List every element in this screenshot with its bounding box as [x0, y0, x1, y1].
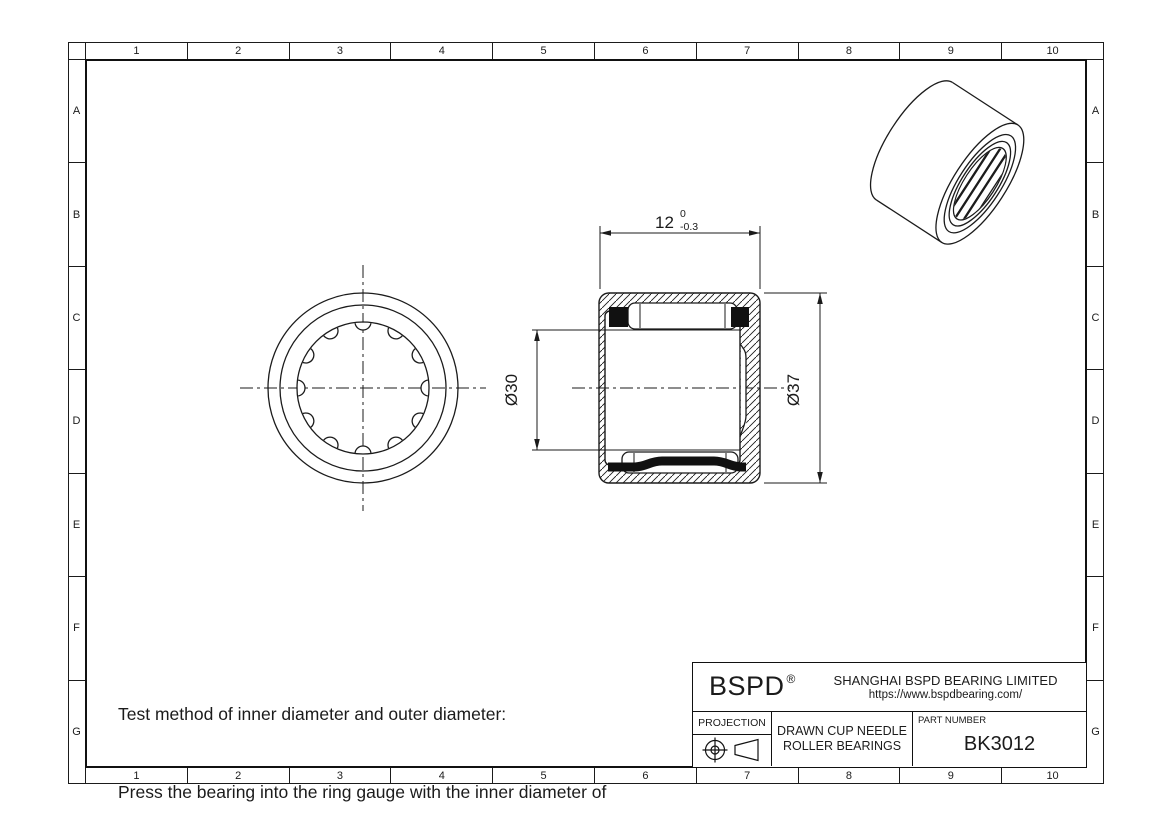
dim-outer-value: Ø37: [784, 374, 803, 406]
dim-width-tol-lower: -0.3: [680, 221, 698, 233]
cage-block-left: [609, 307, 628, 327]
dimension-bore: Ø30: [502, 330, 540, 450]
iso-view: [854, 68, 1040, 258]
note-line: Test method of inner diameter and outer …: [118, 701, 606, 727]
section-view: [532, 293, 790, 483]
bspd-logo: BSPD®: [693, 671, 805, 702]
registered-mark: ®: [787, 672, 796, 686]
dim-bore-value: Ø30: [502, 374, 521, 406]
part-name: DRAWN CUP NEEDLE ROLLER BEARINGS: [772, 712, 913, 767]
first-angle-projection-icon: [702, 737, 762, 763]
part-name-line1: DRAWN CUP NEEDLE: [777, 724, 907, 739]
projection-cell: PROJECTION: [693, 712, 772, 767]
cage-block-right: [731, 307, 749, 327]
top-roller: [628, 303, 737, 329]
test-method-notes: Test method of inner diameter and outer …: [118, 649, 606, 827]
company-name: SHANGHAI BSPD BEARING LIMITED: [834, 673, 1058, 688]
part-name-line2: ROLLER BEARINGS: [783, 739, 901, 754]
dim-width-tol-upper: 0: [680, 208, 686, 220]
drawing-sheet: 12345678910 12345678910 ABCDEFG ABCDEFG: [0, 0, 1170, 827]
projection-symbol: [693, 735, 771, 767]
note-line: Press the bearing into the ring gauge wi…: [118, 779, 606, 805]
part-number-cell: PART NUMBER BK3012: [913, 712, 1086, 767]
title-block: BSPD® SHANGHAI BSPD BEARING LIMITED http…: [692, 662, 1087, 768]
projection-label: PROJECTION: [693, 712, 771, 735]
part-number-value: BK3012: [913, 733, 1086, 756]
company-website: https://www.bspdbearing.com/: [869, 689, 1022, 701]
front-view: [240, 265, 486, 511]
part-number-label: PART NUMBER: [918, 715, 986, 726]
dimension-width: 12 0 -0.3: [600, 208, 760, 289]
company-info: SHANGHAI BSPD BEARING LIMITED https://ww…: [805, 673, 1086, 701]
logo-text: BSPD: [709, 671, 785, 701]
dim-width-value: 12: [655, 213, 674, 232]
